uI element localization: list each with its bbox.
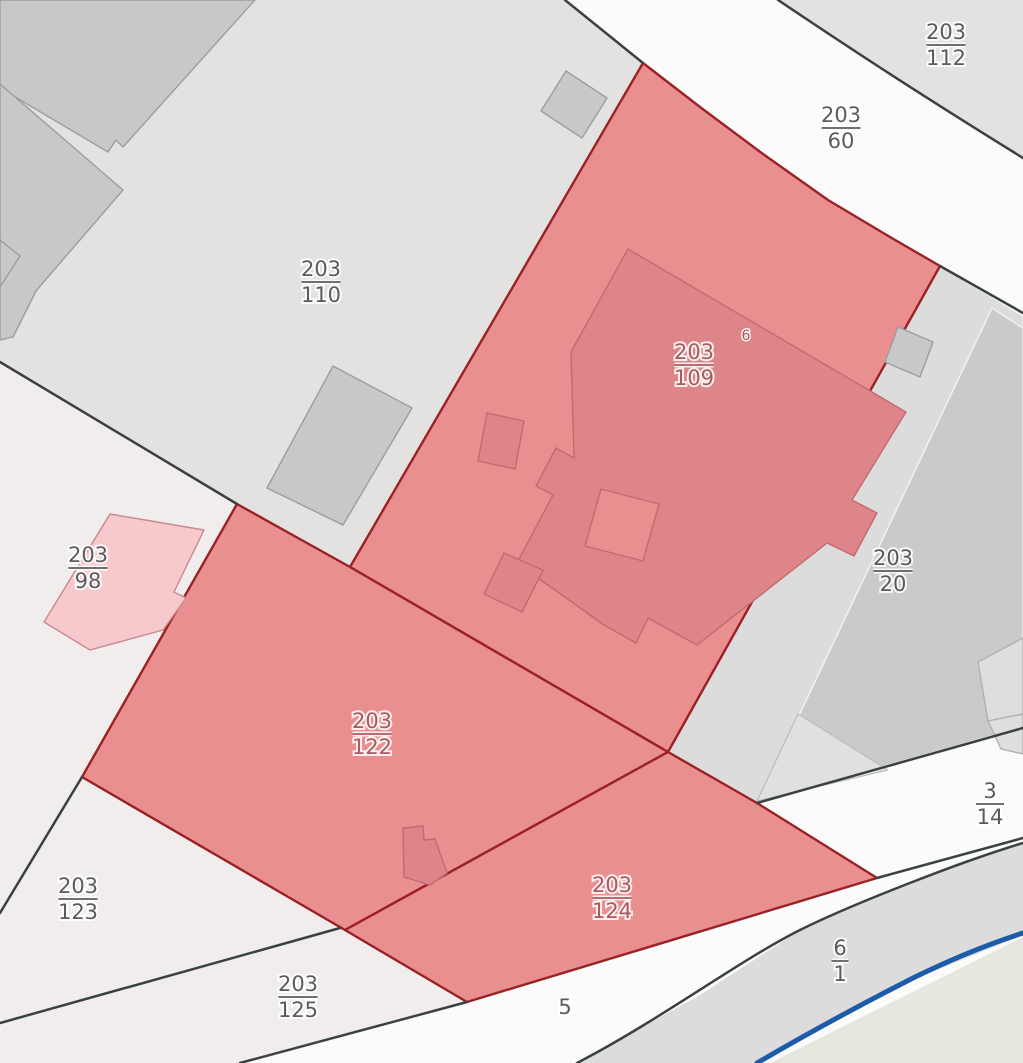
parcel-label-203-124: 203124	[592, 873, 632, 923]
parcel-number-text: 125	[278, 998, 318, 1022]
parcel-number-text: 203	[873, 546, 913, 570]
parcel-number-text: 122	[352, 735, 392, 759]
parcel-number-text: 203	[68, 543, 108, 567]
parcel-number-text: 112	[926, 46, 966, 70]
parcel-number-text: 1	[833, 962, 846, 986]
building-red-annex-west[interactable]	[478, 413, 524, 469]
parcel-label-6-1: 61	[832, 936, 849, 986]
parcel-label-203-112: 203112	[926, 20, 966, 70]
parcel-label-203-110: 203110	[301, 257, 341, 307]
parcel-number-text: 20	[880, 572, 907, 596]
parcel-number-text: 203	[926, 20, 966, 44]
parcel-number-text: 6	[833, 936, 846, 960]
parcel-label-3-14: 314	[976, 779, 1004, 829]
parcel-number-text: 203	[674, 340, 714, 364]
parcel-number-text: 203	[592, 873, 632, 897]
parcel-number-text: 98	[75, 569, 102, 593]
parcel-label-5: 5	[558, 995, 571, 1019]
parcel-number-text: 203	[821, 103, 861, 127]
parcel-number-text: 203	[301, 257, 341, 281]
parcel-label-203-109: 203109	[674, 340, 714, 390]
parcel-label-203-125: 203125	[278, 972, 318, 1022]
parcel-number-text: 203	[352, 709, 392, 733]
parcel-label-203-123: 203123	[58, 874, 98, 924]
parcel-number-text: 3	[983, 779, 996, 803]
house-number: 6	[742, 328, 751, 344]
parcel-number-text: 203	[58, 874, 98, 898]
parcel-number-text: 5	[558, 995, 571, 1019]
parcel-number-text: 123	[58, 900, 98, 924]
parcel-number-text: 110	[301, 283, 341, 307]
parcel-label-203-122: 203122	[352, 709, 392, 759]
parcel-number-text: 60	[828, 129, 855, 153]
map-canvas[interactable]: 2031122036020311020310920398203202031223…	[0, 0, 1023, 1063]
parcel-number-text: 109	[674, 366, 714, 390]
parcel-number-text: 124	[592, 899, 632, 923]
parcel-label-203-60: 20360	[821, 103, 861, 153]
parcel-number-text: 14	[977, 805, 1004, 829]
parcel-number-text: 203	[278, 972, 318, 996]
